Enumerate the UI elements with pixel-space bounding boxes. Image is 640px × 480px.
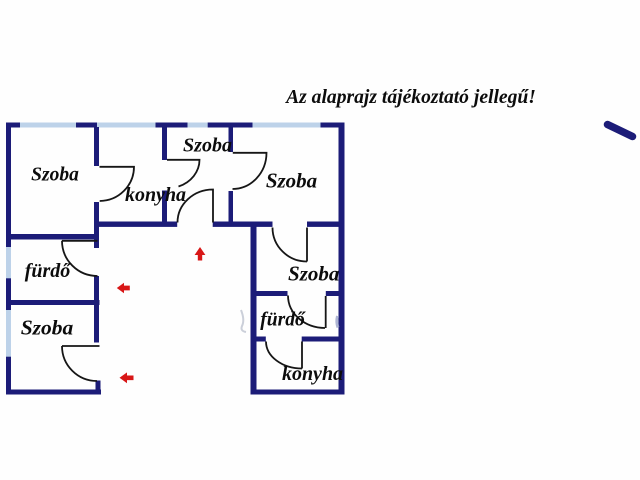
svg-text:Az alaprajz tájékoztató jelleg: Az alaprajz tájékoztató jellegű!	[284, 87, 536, 108]
svg-text:Szoba: Szoba	[288, 262, 339, 286]
svg-text:fürdő: fürdő	[25, 260, 73, 282]
svg-text:Szoba: Szoba	[21, 315, 74, 339]
svg-text:konyha: konyha	[282, 363, 343, 385]
svg-text:Szoba: Szoba	[266, 169, 317, 193]
svg-text:Szoba: Szoba	[31, 164, 79, 185]
svg-text:fürdő: fürdő	[260, 310, 306, 331]
svg-text:konyha: konyha	[125, 184, 186, 206]
svg-text:Szoba: Szoba	[183, 134, 232, 156]
